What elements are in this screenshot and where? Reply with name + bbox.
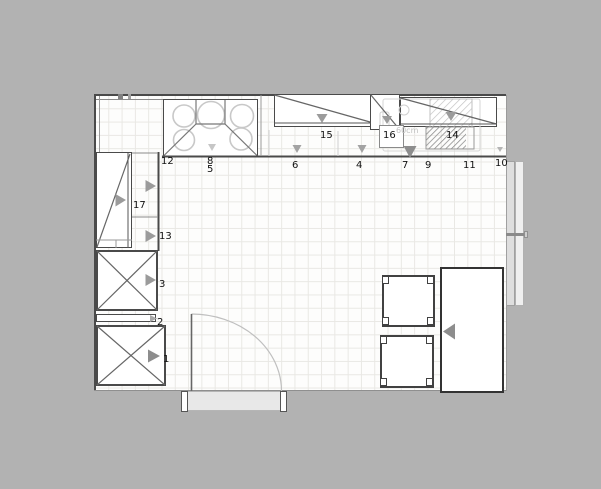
window-handle-icon: [524, 231, 528, 238]
label-item-17: 17: [133, 201, 146, 211]
island-corner-tab: [426, 336, 433, 344]
label-item-4: 4: [356, 161, 362, 171]
cooktop-cabinet[interactable]: [163, 99, 258, 157]
label-dimension: 60cm: [396, 127, 418, 135]
wall-outlet-icon: [118, 94, 123, 99]
wall-cabinet-14[interactable]: [400, 97, 497, 127]
floor-plan-canvas: 60cm 12 8 5 6 4 7 9 11 10 15 16 14 17 13…: [0, 0, 601, 489]
wall-right-upper: [506, 95, 507, 161]
island-corner-tab: [382, 317, 389, 325]
wall-right-lower: [506, 306, 507, 391]
label-item-15: 15: [320, 131, 333, 141]
wall-cabinet-15[interactable]: [274, 94, 371, 127]
label-item-12: 12: [161, 157, 174, 167]
label-item-6: 6: [292, 161, 298, 171]
door-threshold[interactable]: [183, 391, 288, 411]
label-item-9: 9: [425, 161, 431, 171]
door-jamb-right: [280, 391, 287, 412]
label-item-5: 5: [207, 165, 213, 175]
shelf-2[interactable]: [96, 314, 156, 322]
tall-cabinet-17[interactable]: [96, 152, 132, 248]
window-mullion: [506, 233, 525, 236]
island-corner-tab: [380, 378, 387, 386]
label-item-10: 10: [495, 159, 508, 169]
label-item-14: 14: [446, 131, 459, 141]
island-corner-tab: [427, 317, 434, 325]
label-item-11: 11: [463, 161, 476, 171]
wall-tick-icon: [128, 94, 131, 99]
label-item-7: 7: [402, 161, 408, 171]
refrigerator[interactable]: [440, 267, 504, 393]
island-corner-tab: [382, 276, 389, 284]
label-item-13: 13: [159, 232, 172, 242]
wall-left-inner-line: [99, 96, 100, 152]
label-item-2: 2: [157, 318, 163, 328]
wall-top-inner-line: [95, 99, 163, 100]
label-item-3: 3: [159, 280, 165, 290]
island-corner-tab: [426, 378, 433, 386]
island-corner-tab: [380, 336, 387, 344]
label-item-16: 16: [383, 131, 396, 141]
island-corner-tab: [427, 276, 434, 284]
door-jamb-left: [181, 391, 188, 412]
label-item-1: 1: [163, 355, 169, 365]
base-cabinet-1[interactable]: [96, 325, 166, 386]
base-cabinet-3[interactable]: [96, 250, 158, 311]
